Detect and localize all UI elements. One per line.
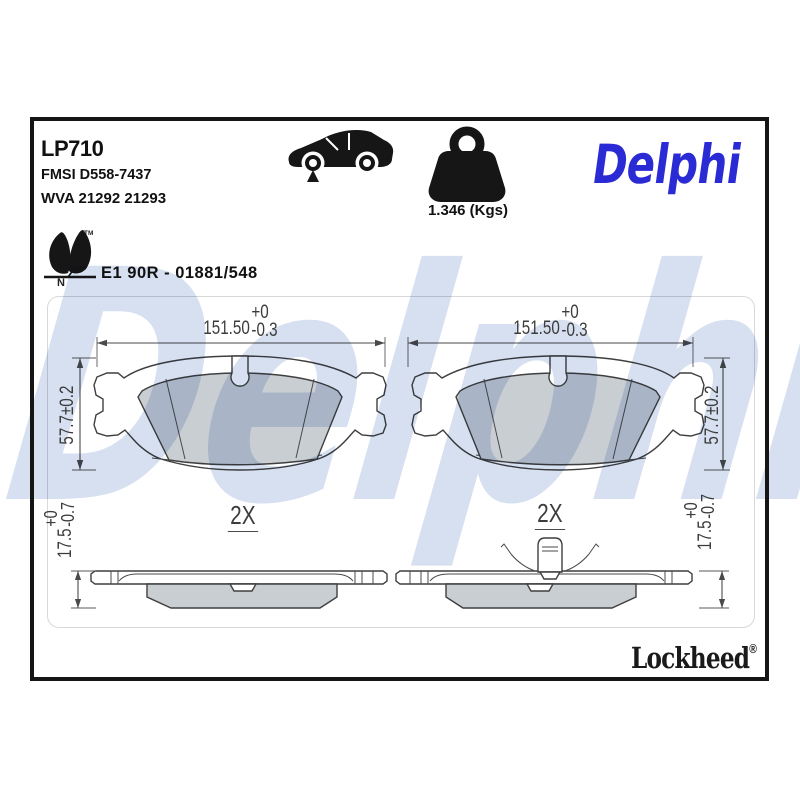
thickness-value: 17.5 [55,528,77,558]
lockheed-wordmark: Lockheed [631,641,749,675]
quantity-label-right: 2X [535,498,565,530]
ece-approval-code: E1 90R - 01881/548 [101,264,258,283]
width-dimension-right: 151.50 +0 -0.3 [450,304,650,340]
leaf-trademark-mark: TM [84,230,93,237]
leaf-letter-n: N [57,277,65,289]
width-value: 151.50 [203,318,250,340]
thickness-tol-lower: -0.7 [60,502,77,527]
weight-icon [429,131,506,202]
fmsi-code: FMSI D558-7437 [41,167,151,183]
width-dimension-left: 151.50 +0 -0.3 [140,304,340,340]
quantity-label-left: 2X [228,500,258,532]
thickness-dimension-right: 17.5 +0 -0.7 [691,463,717,581]
delphi-logo: Delphi [589,138,744,192]
part-number: LP710 [41,136,103,162]
width-tol-lower: -0.3 [561,322,587,340]
height-value: 57.7±0.2 [702,385,724,444]
brake-pad-datasheet: Delphi LP710 FMSI D558-7437 WVA 21292 21… [0,0,800,800]
technical-drawings [0,0,800,800]
registered-trademark-symbol: ® [749,641,756,656]
width-tol-lower: -0.3 [251,322,277,340]
height-dimension-left: 57.7±0.2 [53,355,79,475]
thickness-dimension-left: 17.5 +0 -0.7 [51,471,77,589]
weight-value: 1.346 (Kgs) [414,202,522,219]
width-value: 151.50 [513,318,560,340]
car-front-axle-icon [289,130,394,182]
height-value: 57.7±0.2 [57,385,79,444]
lockheed-logo: Lockheed® [631,644,756,673]
wva-code: WVA 21292 21293 [41,190,166,207]
thickness-tol-lower: -0.7 [700,494,717,519]
eco-leaf-icon [44,230,96,277]
thickness-value: 17.5 [695,520,717,550]
height-dimension-right: 57.7±0.2 [698,355,724,475]
